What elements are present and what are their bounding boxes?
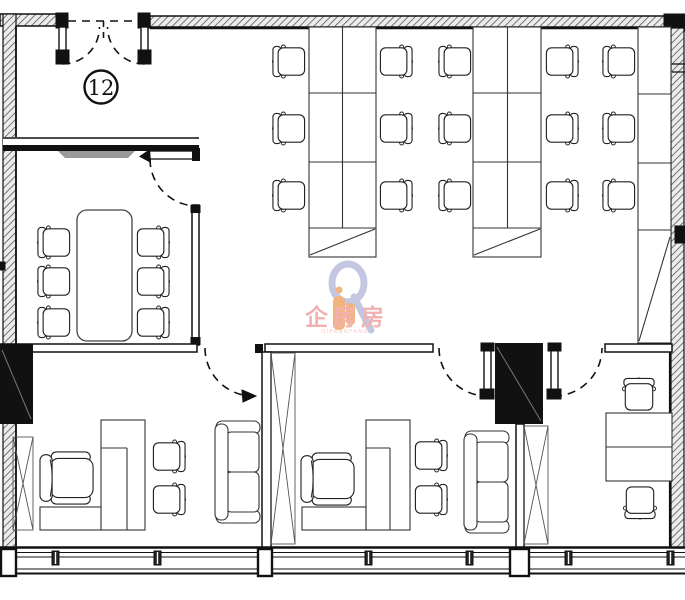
unit-label-text: 12: [88, 76, 115, 100]
top-wall-right: [150, 16, 685, 27]
window-pier: [510, 549, 529, 576]
meeting-chair: [37, 226, 69, 259]
desk-bank-2: [473, 27, 541, 257]
desk-bank-3: [638, 27, 671, 343]
office-chair: [438, 179, 470, 212]
office-chair: [272, 45, 304, 78]
office-chair: [546, 179, 578, 212]
guest-chair: [153, 440, 185, 473]
executive-chair: [40, 452, 93, 504]
door-cap: [548, 343, 561, 351]
entry-jamb-left: [56, 13, 68, 28]
office-chair: [380, 112, 412, 145]
door-cap: [480, 389, 494, 399]
wall-screen: [58, 151, 135, 158]
window-pier: [258, 549, 272, 576]
meeting-chair: [137, 306, 169, 339]
office-chair: [602, 112, 634, 145]
partition-left: [262, 352, 271, 548]
entry-door-leaf-right: [141, 27, 148, 53]
entry-door-cap-left: [56, 50, 69, 64]
office-chair: [438, 112, 470, 145]
left-wall: [3, 14, 16, 548]
meeting-door-hinge: [192, 148, 200, 161]
floor-plan-canvas: 企房房 QIFANGFANG 12: [0, 0, 685, 600]
office-chair: [602, 179, 634, 212]
office-chair: [602, 45, 634, 78]
watermark-title: 企房房: [304, 304, 389, 331]
window-pier: [1, 549, 16, 576]
partition-right: [516, 424, 524, 548]
office-chair: [546, 112, 578, 145]
conference-table: [77, 210, 132, 341]
office-chair: [272, 112, 304, 145]
entry-door-leaf-left: [59, 27, 66, 53]
office-chair: [272, 179, 304, 212]
meeting-chair: [37, 265, 69, 298]
door-cap: [547, 389, 561, 399]
executive-chair: [301, 453, 354, 505]
guest-chair: [153, 483, 185, 516]
guest-chair: [415, 439, 447, 472]
meeting-right-wall: [192, 205, 199, 345]
left-wall-joint-mark: [0, 262, 5, 270]
office-chair: [438, 45, 470, 78]
office-chair: [380, 179, 412, 212]
watermark-subtitle: QIFANGFANG: [321, 329, 369, 335]
unit-label: 12: [85, 71, 118, 104]
office-chair: [546, 45, 578, 78]
desk-bank-1: [309, 27, 376, 257]
office-right-door-leaf: [551, 347, 558, 395]
office-chair: [622, 378, 655, 410]
right-wall-beam-mark: [675, 226, 685, 243]
meeting-chair: [137, 226, 169, 259]
meeting-door-leaf: [149, 151, 197, 159]
meeting-top-wall-band: [3, 145, 199, 151]
sofa: [215, 421, 260, 523]
office-middle-door-leaf: [484, 347, 491, 395]
office-chair: [380, 45, 412, 78]
meeting-right-wall-cap-top: [191, 205, 201, 213]
meeting-chair: [137, 265, 169, 298]
office-chair: [623, 487, 656, 519]
office-wall-segment-c: [605, 344, 672, 352]
sofa: [464, 431, 509, 533]
entry-jamb-right: [138, 13, 150, 28]
office-wall-segment-b: [265, 344, 433, 352]
wall-desk: [606, 413, 672, 481]
entry-door-cap-right: [138, 50, 151, 64]
guest-chair: [415, 483, 447, 516]
meeting-chair: [37, 306, 69, 339]
floor-plan: 企房房 QIFANGFANG 12: [0, 0, 685, 600]
door-cap: [481, 343, 494, 351]
right-wall: [671, 28, 684, 548]
